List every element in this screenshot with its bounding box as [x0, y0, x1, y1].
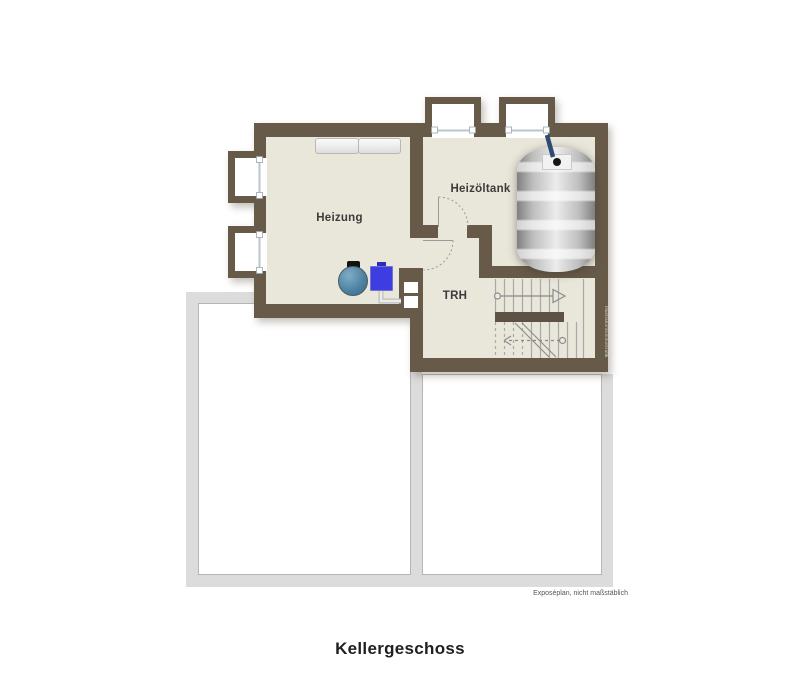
stair-landing-bar — [495, 312, 564, 322]
door-arc-heizung — [423, 241, 453, 271]
tank-pipe — [547, 135, 553, 157]
floorplan-canvas: Illustration©immoGrafik — [0, 0, 800, 695]
floor-title: Kellergeschoss — [0, 639, 800, 659]
linework-layer — [0, 0, 800, 695]
room-label-heizoeltank: Heizöltank — [428, 183, 533, 195]
staircase — [495, 279, 584, 358]
scale-footnote: Exposéplan, nicht maßstäblich — [533, 590, 628, 597]
pump-pipe — [381, 291, 401, 301]
room-label-trh: TRH — [429, 290, 481, 302]
window-glazing-caps — [257, 127, 550, 274]
window-glazing — [260, 131, 544, 269]
door-arc-oiltank — [439, 197, 469, 227]
room-label-heizung: Heizung — [287, 212, 392, 224]
